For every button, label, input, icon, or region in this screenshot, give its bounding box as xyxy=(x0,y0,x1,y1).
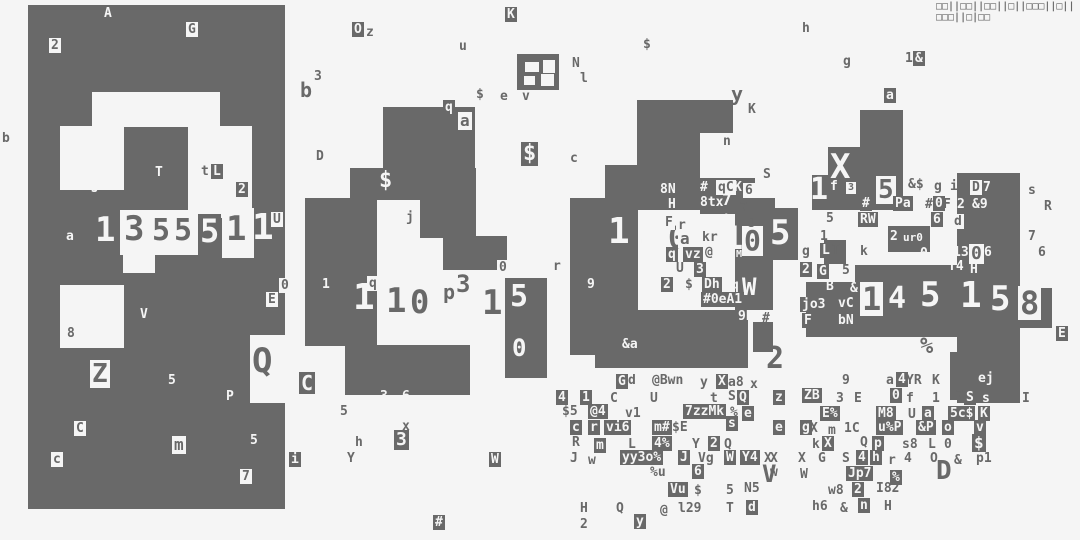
noise-char: U xyxy=(650,392,658,405)
noise-char: y xyxy=(634,514,646,529)
noise-char: yy3o% xyxy=(620,450,663,465)
noise-char: g xyxy=(802,245,810,258)
blob-2-digit: 0 xyxy=(512,336,526,360)
noise-char: 1 xyxy=(932,392,940,405)
noise-char: ZB xyxy=(802,388,822,403)
noise-char: 7 xyxy=(956,390,964,403)
noise-char: 0 xyxy=(890,388,902,403)
noise-char: % xyxy=(724,213,732,226)
noise-char: S xyxy=(728,390,736,403)
noise-char: 4 xyxy=(556,390,568,405)
noise-char: & xyxy=(840,502,848,515)
noise-char: d xyxy=(952,214,964,229)
noise-char: G xyxy=(616,374,628,389)
noise-char: # xyxy=(433,515,445,530)
noise-char: H xyxy=(580,502,588,515)
noise-char: kr xyxy=(700,230,720,245)
noise-char: a xyxy=(922,406,934,421)
noise-char: J xyxy=(570,452,578,465)
noise-char: e xyxy=(742,406,754,421)
noise-char: $ xyxy=(521,142,538,166)
noise-char: P xyxy=(226,390,234,403)
noise-char: Q xyxy=(737,390,749,405)
noise-char: 1C xyxy=(844,422,860,435)
noise-char: U xyxy=(271,212,283,227)
noise-char: 4 xyxy=(904,452,912,465)
noise-char: &a xyxy=(622,338,638,351)
blob-3-digit: 1 xyxy=(608,214,630,250)
noise-char: 2 xyxy=(957,198,965,211)
noise-char: vz xyxy=(683,247,703,262)
noise-char: i xyxy=(289,452,301,467)
noise-char: F xyxy=(802,313,814,328)
noise-char: 6 xyxy=(984,246,992,259)
noise-char: Dh xyxy=(702,277,722,292)
noise-char: 2 xyxy=(661,277,673,292)
noise-char: e xyxy=(500,90,508,103)
noise-char: L xyxy=(928,438,936,451)
noise-char: 6 xyxy=(402,390,410,403)
blob-4-digit: 1 xyxy=(860,282,883,316)
noise-char: V xyxy=(140,308,148,321)
blob-2-digit: 1 xyxy=(386,284,406,318)
noise-char: 6 xyxy=(1038,246,1046,259)
noise-char: Q xyxy=(616,502,624,515)
noise-char: K xyxy=(734,181,742,194)
noise-char: Jp7 xyxy=(846,466,873,481)
noise-char: # xyxy=(762,312,770,325)
noise-char: p xyxy=(872,436,884,451)
blob-3-digit: 5 xyxy=(770,216,790,250)
noise-char: s xyxy=(726,416,738,431)
noise-char: X xyxy=(716,374,728,389)
noise-char: 0 xyxy=(969,244,984,264)
noise-char: 9 xyxy=(587,278,595,291)
noise-char: W xyxy=(489,452,501,467)
noise-char: 13 xyxy=(953,246,969,259)
blob-1-digit: 5 xyxy=(198,214,221,248)
noise-char: Y xyxy=(347,452,355,465)
noise-char: a xyxy=(886,374,894,387)
noise-char: 1 xyxy=(820,230,828,243)
noise-char: 3 xyxy=(846,182,856,194)
noise-char: c xyxy=(51,452,63,467)
noise-char: & xyxy=(913,51,925,66)
noise-char: M8 xyxy=(876,406,896,421)
window-icon-pane xyxy=(543,60,555,73)
noise-char: K xyxy=(978,406,990,421)
noise-char: 6 xyxy=(743,183,755,198)
blob-4-digit: 5 xyxy=(990,282,1010,316)
blob-3-rect xyxy=(637,100,700,168)
noise-char: q xyxy=(367,276,379,291)
noise-char: T xyxy=(832,244,840,257)
noise-char: $5 xyxy=(562,405,578,418)
noise-char: Vu xyxy=(668,482,688,497)
noise-char: 0 xyxy=(920,247,928,260)
blob-3-digit: 1 xyxy=(638,214,660,250)
noise-char: 8 xyxy=(67,327,75,340)
noise-char: C xyxy=(74,421,86,436)
noise-char: ur0 xyxy=(903,232,923,243)
noise-char: t xyxy=(201,165,209,178)
noise-char: 0 xyxy=(944,438,952,451)
noise-char: @ xyxy=(660,504,668,517)
noise-char: d xyxy=(746,500,758,515)
noise-char: Z xyxy=(90,360,110,388)
noise-char: m xyxy=(172,436,186,454)
noise-char: 5c$ xyxy=(948,406,975,421)
noise-char: q xyxy=(666,247,678,262)
noise-char: 5 xyxy=(726,484,734,497)
noise-char: y xyxy=(731,84,743,104)
noise-char: S xyxy=(842,452,850,465)
noise-char: 1 xyxy=(810,175,828,205)
noise-char: s8 xyxy=(902,438,918,451)
noise-char: $E xyxy=(672,421,688,434)
noise-char: N xyxy=(572,57,580,70)
noise-char: E xyxy=(854,392,862,405)
window-icon xyxy=(517,54,559,90)
noise-char: 2 xyxy=(800,262,812,277)
noise-char: z xyxy=(773,390,785,405)
noise-char: q xyxy=(731,279,739,292)
noise-char: # xyxy=(925,198,933,211)
window-icon-pane xyxy=(525,62,539,72)
noise-char: $ xyxy=(379,170,392,192)
noise-char: vi6 xyxy=(604,420,631,435)
noise-char: 5 xyxy=(842,264,850,277)
noise-char: S xyxy=(763,168,771,181)
noise-char: E% xyxy=(820,406,840,421)
noise-char: U xyxy=(676,262,684,275)
noise-char: K xyxy=(936,248,944,261)
noise-char: r xyxy=(588,420,600,435)
noise-char: @4 xyxy=(588,404,608,419)
noise-char: L xyxy=(820,243,832,258)
noise-char: 7zzMk xyxy=(683,404,726,419)
noise-char: Pa xyxy=(893,196,913,211)
noise-char: U xyxy=(908,408,916,421)
noise-char: & xyxy=(108,119,116,132)
noise-char: 2 xyxy=(580,518,588,531)
noise-char: R xyxy=(572,436,580,449)
noise-char: O xyxy=(352,22,364,37)
noise-char: h xyxy=(870,450,882,465)
noise-char: 5 xyxy=(250,434,258,447)
noise-char: n xyxy=(858,498,870,513)
noise-char: w xyxy=(770,466,778,479)
noise-char: & xyxy=(954,454,962,467)
noise-char: h xyxy=(355,436,363,449)
noise-char: &$ xyxy=(908,178,924,191)
noise-char: X xyxy=(822,436,834,451)
noise-char: s xyxy=(982,392,990,405)
noise-char: k xyxy=(812,438,820,451)
captcha-image: □□||□□||□□||□||□□□||□||□□□||□|□□ 1355511… xyxy=(0,0,1080,540)
blob-3-rect xyxy=(595,310,748,368)
noise-char: Y xyxy=(692,438,700,451)
noise-char: & xyxy=(850,282,858,295)
noise-char: e xyxy=(773,420,785,435)
noise-char: T xyxy=(155,166,163,179)
noise-char: Q xyxy=(860,436,868,449)
noise-char: F xyxy=(943,198,951,211)
noise-char: X xyxy=(798,452,806,465)
noise-char: C xyxy=(299,372,315,394)
noise-char: Y4 xyxy=(740,450,760,465)
noise-char: 1 xyxy=(322,278,330,291)
noise-char: u xyxy=(459,40,467,53)
noise-char: $ xyxy=(643,38,651,51)
noise-char: 7 xyxy=(983,181,991,194)
noise-char: b xyxy=(2,132,10,145)
noise-char: YR xyxy=(906,374,922,387)
noise-char: H xyxy=(668,198,676,211)
noise-char: bN xyxy=(836,313,856,328)
noise-char: ej xyxy=(978,372,994,385)
noise-char: C xyxy=(610,392,618,405)
noise-char: d xyxy=(628,374,636,387)
blob-1-digit: 3 xyxy=(124,212,144,246)
noise-char: a xyxy=(678,230,692,248)
blob-1-digit: 1 xyxy=(226,212,246,246)
noise-char: M xyxy=(860,258,866,268)
noise-char: 4% xyxy=(652,436,672,451)
noise-char: W xyxy=(742,275,756,299)
noise-char: 1 xyxy=(905,52,913,65)
noise-char: G xyxy=(818,452,826,465)
noise-char: T xyxy=(726,502,734,515)
noise-char: 3 xyxy=(314,70,322,83)
blob-1-digit: 5 xyxy=(152,216,170,246)
noise-char: f xyxy=(830,180,838,193)
noise-char: i xyxy=(950,180,958,193)
window-icon-pane xyxy=(524,76,535,85)
noise-char: r xyxy=(888,454,896,467)
noise-char: D xyxy=(936,458,952,484)
noise-char: 7 xyxy=(240,469,252,484)
noise-char: D xyxy=(316,150,324,163)
noise-char: T4 xyxy=(948,260,964,273)
noise-char: # xyxy=(700,181,708,194)
noise-char: 4 xyxy=(856,450,868,465)
noise-char: 9b xyxy=(738,310,754,323)
noise-char: A xyxy=(104,7,112,20)
noise-char: 2 xyxy=(49,38,61,53)
noise-char: p1 xyxy=(976,452,992,465)
noise-char: 3 xyxy=(380,390,388,403)
noise-char: K xyxy=(748,103,756,116)
noise-char: 8N xyxy=(660,183,676,196)
noise-char: H xyxy=(970,263,978,276)
noise-char: &P xyxy=(916,420,936,435)
noise-char: E xyxy=(1056,326,1068,341)
noise-char: 5 xyxy=(168,374,176,387)
noise-char: $ xyxy=(694,484,702,497)
noise-char: 5 xyxy=(340,405,348,418)
noise-char: W xyxy=(724,450,736,465)
blob-4-digit: 8 xyxy=(1018,286,1041,320)
noise-char: g xyxy=(934,180,942,193)
noise-char: y xyxy=(700,376,708,389)
noise-char: $ xyxy=(685,278,693,291)
noise-char: % xyxy=(920,336,933,358)
noise-char: 1 xyxy=(580,390,592,405)
noise-char: &9 xyxy=(972,198,988,211)
noise-char: 0 xyxy=(279,278,291,293)
noise-char: 6 xyxy=(692,464,704,479)
noise-char: K xyxy=(932,374,940,387)
blob-2-rect xyxy=(305,198,377,346)
window-icon-pane xyxy=(541,74,554,86)
blob-4-digit: 5 xyxy=(920,278,940,312)
noise-char: g xyxy=(843,55,851,68)
blob-2-digit: 5 xyxy=(510,282,528,312)
noise-char: $ xyxy=(972,434,986,452)
noise-char: s xyxy=(1028,184,1036,197)
blob-2-digit: 1 xyxy=(482,286,502,320)
noise-char: 3 xyxy=(694,262,706,277)
noise-char: x xyxy=(750,378,758,391)
noise-char: 3 xyxy=(394,430,409,450)
noise-char: B xyxy=(826,280,834,293)
binary-pattern-text: □□||□□||□□||□||□□□||□||□□□||□|□□ xyxy=(936,1,1080,23)
blob-2-digit: p xyxy=(443,282,455,302)
noise-char: X xyxy=(810,422,818,435)
noise-char: G xyxy=(186,22,198,37)
noise-char: R xyxy=(1044,200,1052,213)
noise-char: w xyxy=(588,454,596,467)
noise-char: 6 xyxy=(931,212,943,227)
noise-char: 7 xyxy=(740,202,748,215)
noise-char: 7 xyxy=(1028,230,1036,243)
noise-char: b xyxy=(300,80,312,100)
noise-char: o xyxy=(942,420,954,435)
blob-4-digit: 1 xyxy=(960,278,982,314)
noise-char: v1 xyxy=(625,407,641,420)
blob-2-rect xyxy=(350,168,476,200)
noise-char: q xyxy=(443,100,455,115)
blob-1-digit: 1 xyxy=(95,213,115,247)
noise-char: f xyxy=(906,392,914,405)
noise-char: 8tx xyxy=(700,196,723,209)
noise-char: L xyxy=(211,164,223,179)
noise-char: m# xyxy=(652,420,672,435)
noise-char: J xyxy=(678,450,690,465)
noise-char: c xyxy=(570,152,578,165)
noise-char: 2 xyxy=(890,230,898,243)
noise-char: u%P xyxy=(876,420,903,435)
noise-char: l xyxy=(580,72,588,85)
noise-char: 9 xyxy=(842,374,850,387)
noise-char: 5 xyxy=(826,212,834,225)
noise-char: Q xyxy=(252,344,272,378)
noise-char: j xyxy=(404,210,416,225)
noise-char: a xyxy=(884,88,896,103)
noise-char: F xyxy=(663,215,675,230)
noise-char: z xyxy=(366,26,374,39)
blob-2-digit: 0 xyxy=(410,286,429,318)
blob-2-digit: 3 xyxy=(456,272,470,296)
noise-char: RW xyxy=(858,212,878,227)
noise-char: I82 xyxy=(876,482,899,495)
noise-char: E xyxy=(266,292,278,307)
blob-1-digit: 5 xyxy=(174,216,192,246)
noise-char: a xyxy=(66,230,74,243)
noise-char: D xyxy=(970,180,982,195)
noise-char: X xyxy=(770,452,778,465)
noise-char: $ xyxy=(476,88,484,101)
noise-char: J xyxy=(748,217,756,230)
noise-char: 7 xyxy=(722,192,732,208)
noise-char: w8 xyxy=(828,484,844,497)
noise-char: 2 xyxy=(766,344,784,374)
noise-char: W xyxy=(800,468,808,481)
noise-char: a8 xyxy=(728,376,744,389)
noise-char: G xyxy=(817,264,829,279)
noise-char: J xyxy=(91,182,99,195)
noise-char: %u xyxy=(650,466,666,479)
noise-char: @Bwn xyxy=(652,374,683,387)
noise-char: 2 xyxy=(708,436,720,451)
noise-char: h xyxy=(802,22,810,35)
noise-char: K xyxy=(505,7,517,22)
noise-char: @ xyxy=(703,245,715,260)
noise-char: l29 xyxy=(678,502,701,515)
noise-char: 3 xyxy=(836,392,844,405)
blob-4-digit: 4 xyxy=(888,284,906,314)
noise-char: 2 xyxy=(236,182,248,197)
blob-1-hole xyxy=(123,255,155,273)
noise-char: 0 xyxy=(497,260,509,275)
blob-2-rect xyxy=(345,345,470,395)
noise-char: H xyxy=(884,500,892,513)
noise-char: M xyxy=(736,250,742,260)
noise-char: 2 xyxy=(852,482,864,497)
noise-char: N5 xyxy=(744,482,760,495)
noise-char: S xyxy=(964,390,976,405)
noise-char: #0eA1 xyxy=(701,292,744,307)
noise-char: a xyxy=(458,112,472,130)
noise-char: n xyxy=(723,135,731,148)
noise-char: I xyxy=(1022,392,1030,405)
blob-2-rect xyxy=(420,198,476,238)
noise-char: jo3 xyxy=(800,297,827,312)
noise-char: # xyxy=(860,196,872,211)
noise-char: vC xyxy=(836,296,856,311)
noise-char: h6 xyxy=(812,500,828,513)
noise-char: r xyxy=(553,260,561,273)
noise-char: c xyxy=(570,420,582,435)
noise-char: m xyxy=(594,438,606,453)
noise-char: v xyxy=(522,90,530,103)
